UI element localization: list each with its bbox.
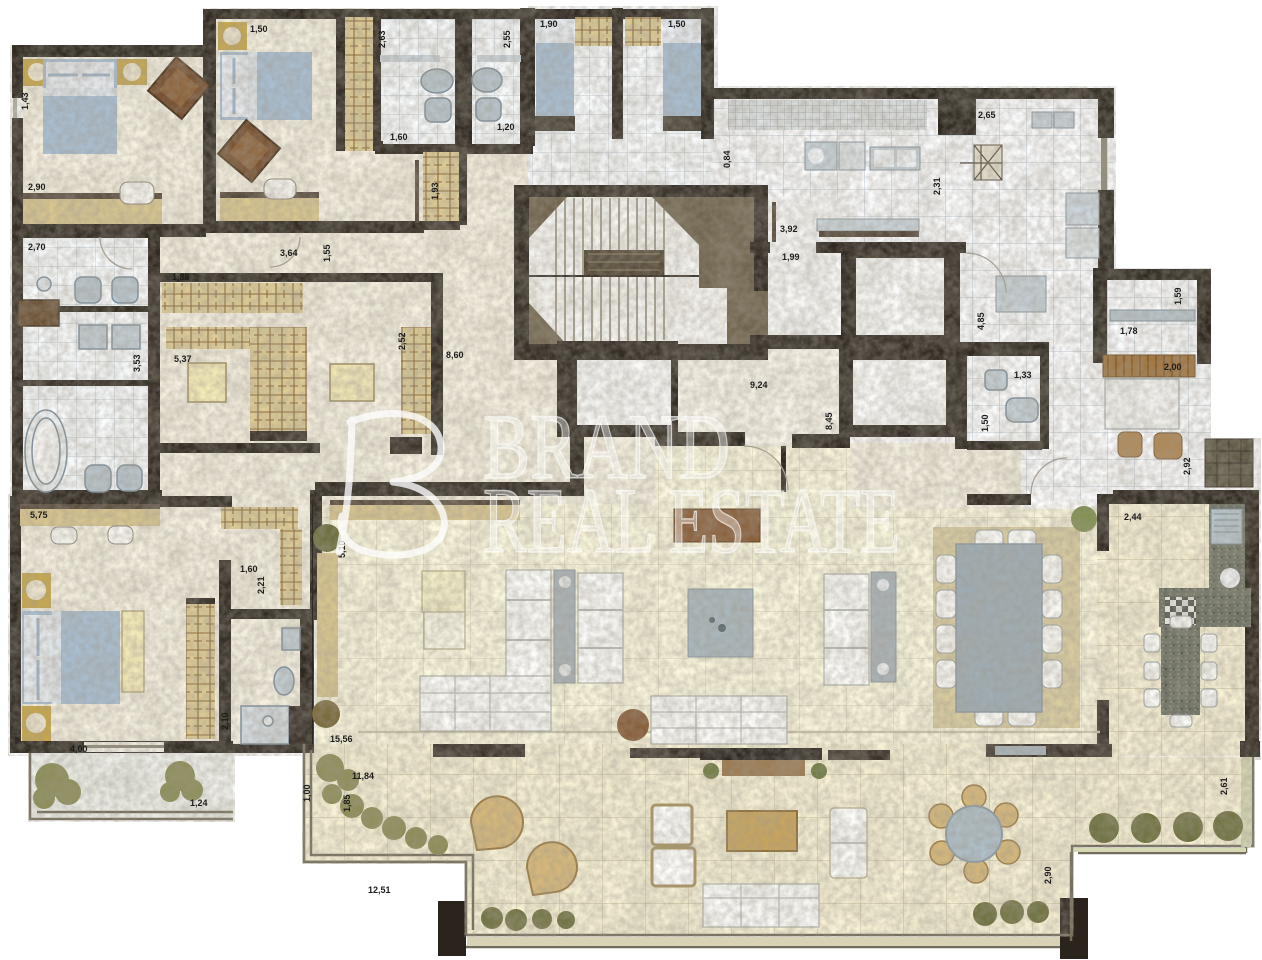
svg-text:2,52: 2,52	[397, 332, 407, 350]
svg-text:3,64: 3,64	[280, 248, 298, 258]
svg-text:1,93: 1,93	[430, 182, 440, 200]
svg-text:4,00: 4,00	[70, 744, 88, 754]
svg-text:1,24: 1,24	[190, 798, 208, 808]
svg-text:1,99: 1,99	[782, 252, 800, 262]
svg-text:0,84: 0,84	[722, 150, 732, 168]
svg-text:2,31: 2,31	[932, 177, 942, 195]
svg-text:9,24: 9,24	[750, 380, 768, 390]
svg-text:3,92: 3,92	[780, 224, 798, 234]
svg-text:8,60: 8,60	[446, 350, 464, 360]
svg-text:1,55: 1,55	[322, 244, 332, 262]
svg-text:REAL ESTATE: REAL ESTATE	[483, 470, 900, 573]
svg-text:8,45: 8,45	[824, 412, 834, 430]
svg-text:2,44: 2,44	[1124, 512, 1142, 522]
svg-text:1,50: 1,50	[668, 19, 686, 29]
svg-text:1,88: 1,88	[172, 272, 190, 282]
svg-text:2,10: 2,10	[220, 712, 230, 730]
svg-text:1,33: 1,33	[1014, 370, 1032, 380]
svg-text:2,61: 2,61	[1219, 777, 1229, 795]
svg-text:2,00: 2,00	[1164, 362, 1182, 372]
svg-text:1,00: 1,00	[302, 784, 312, 802]
svg-text:3,53: 3,53	[132, 354, 142, 372]
svg-text:1,78: 1,78	[1120, 326, 1138, 336]
svg-text:1,60: 1,60	[240, 564, 258, 574]
svg-text:1,50: 1,50	[980, 414, 990, 432]
svg-text:2,90: 2,90	[1043, 866, 1053, 884]
svg-text:2,21: 2,21	[256, 576, 266, 594]
svg-text:2,55: 2,55	[502, 30, 512, 48]
svg-text:5,37: 5,37	[174, 354, 192, 364]
svg-text:15,56: 15,56	[330, 734, 353, 744]
svg-text:1,59: 1,59	[1173, 287, 1183, 305]
svg-text:4,85: 4,85	[976, 312, 986, 330]
svg-text:2,92: 2,92	[1182, 457, 1192, 475]
svg-text:2,65: 2,65	[978, 110, 996, 120]
svg-text:1,50: 1,50	[250, 24, 268, 34]
svg-text:2,70: 2,70	[28, 242, 46, 252]
svg-text:11,84: 11,84	[352, 771, 374, 781]
svg-text:12,51: 12,51	[368, 885, 391, 895]
svg-text:2,63: 2,63	[377, 30, 387, 48]
svg-text:1,60: 1,60	[390, 132, 408, 142]
svg-text:1,85: 1,85	[342, 794, 352, 812]
svg-text:1,43: 1,43	[20, 92, 30, 110]
svg-text:1,20: 1,20	[497, 122, 515, 132]
svg-text:1,90: 1,90	[540, 19, 558, 29]
svg-text:2,90: 2,90	[28, 182, 46, 192]
svg-text:5,75: 5,75	[30, 510, 48, 520]
